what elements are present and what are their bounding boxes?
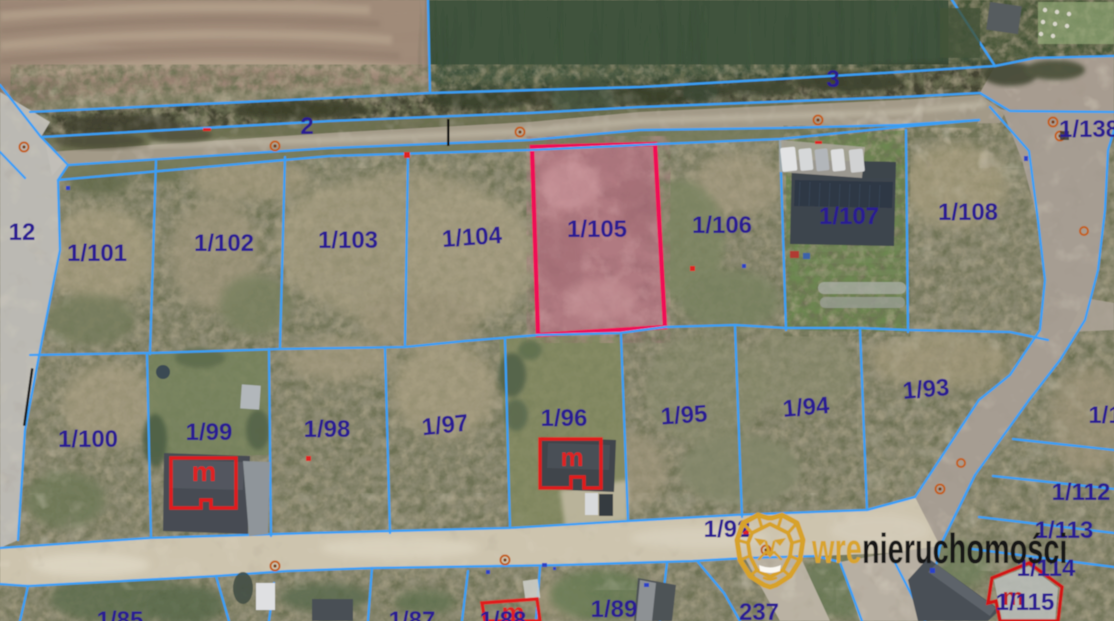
svg-text:1/97: 1/97	[420, 410, 469, 442]
svg-text:1/138: 1/138	[1059, 116, 1114, 143]
svg-text:1/112: 1/112	[1052, 479, 1111, 506]
svg-text:237: 237	[739, 599, 779, 621]
svg-text:1/85: 1/85	[97, 607, 144, 621]
svg-text:1/98: 1/98	[304, 416, 351, 443]
svg-text:1/96: 1/96	[541, 405, 588, 432]
svg-text:wre: wre	[811, 525, 862, 573]
svg-text:1/89: 1/89	[591, 596, 638, 621]
svg-text:1/101: 1/101	[67, 240, 127, 267]
svg-text:m: m	[560, 442, 583, 472]
svg-text:1/105: 1/105	[567, 216, 627, 243]
svg-text:1/108: 1/108	[938, 199, 998, 226]
svg-text:1/106: 1/106	[692, 212, 752, 239]
svg-text:1/104: 1/104	[441, 222, 503, 253]
svg-text:1/1: 1/1	[1088, 402, 1114, 429]
svg-text:12: 12	[9, 219, 36, 246]
svg-text:1/95: 1/95	[660, 400, 708, 430]
svg-text:m: m	[192, 456, 217, 487]
svg-text:2: 2	[300, 113, 313, 140]
svg-text:1/107: 1/107	[819, 203, 879, 230]
svg-text:1/93: 1/93	[902, 374, 951, 405]
svg-text:3: 3	[826, 66, 839, 93]
svg-text:1/99: 1/99	[186, 419, 233, 446]
svg-text:nieruchomości: nieruchomości	[862, 525, 1067, 573]
svg-text:1/94: 1/94	[782, 392, 832, 423]
svg-text:1/87: 1/87	[389, 607, 436, 621]
svg-text:1/115: 1/115	[996, 589, 1055, 616]
svg-text:1/103: 1/103	[318, 227, 378, 254]
svg-text:1/100: 1/100	[58, 426, 118, 453]
svg-text:1/88: 1/88	[480, 607, 527, 621]
svg-text:1/102: 1/102	[194, 230, 254, 257]
